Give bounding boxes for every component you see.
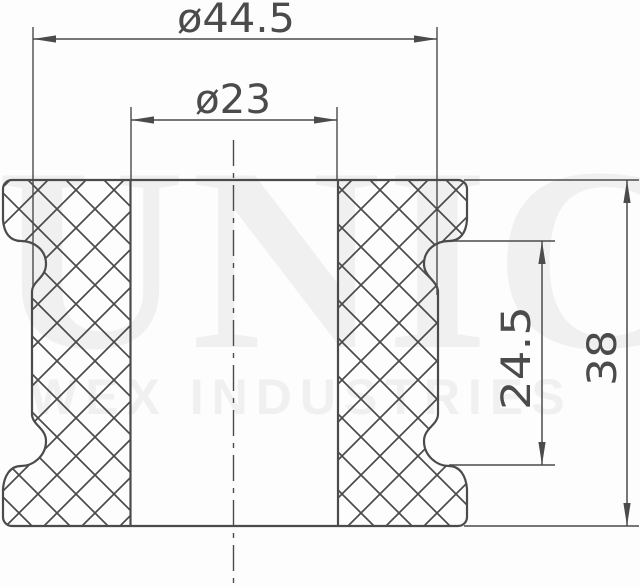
dim-outer-groove-diameter-label: ø44.5 bbox=[177, 0, 295, 42]
drawing-sheet: UNIC WEX INDUSTRIES ø44.5 bbox=[0, 0, 640, 587]
dim-overall-height: 38 bbox=[464, 180, 639, 526]
arrowhead bbox=[33, 35, 56, 42]
drawing-canvas: ø44.5 ø23 24.5 38 bbox=[0, 0, 640, 587]
dim-groove-height: 24.5 bbox=[449, 241, 555, 465]
dim-bore-diameter-label: ø23 bbox=[195, 77, 271, 123]
part-right-wall bbox=[338, 180, 467, 526]
arrowhead bbox=[538, 442, 545, 465]
arrowhead bbox=[131, 116, 154, 123]
arrowhead bbox=[623, 180, 630, 203]
arrowhead bbox=[314, 116, 337, 123]
arrowhead bbox=[414, 35, 437, 42]
arrowhead bbox=[538, 241, 545, 264]
dim-groove-height-label: 24.5 bbox=[494, 306, 540, 410]
arrowhead bbox=[623, 503, 630, 526]
dim-overall-height-label: 38 bbox=[580, 330, 626, 386]
part-left-wall bbox=[3, 180, 131, 526]
